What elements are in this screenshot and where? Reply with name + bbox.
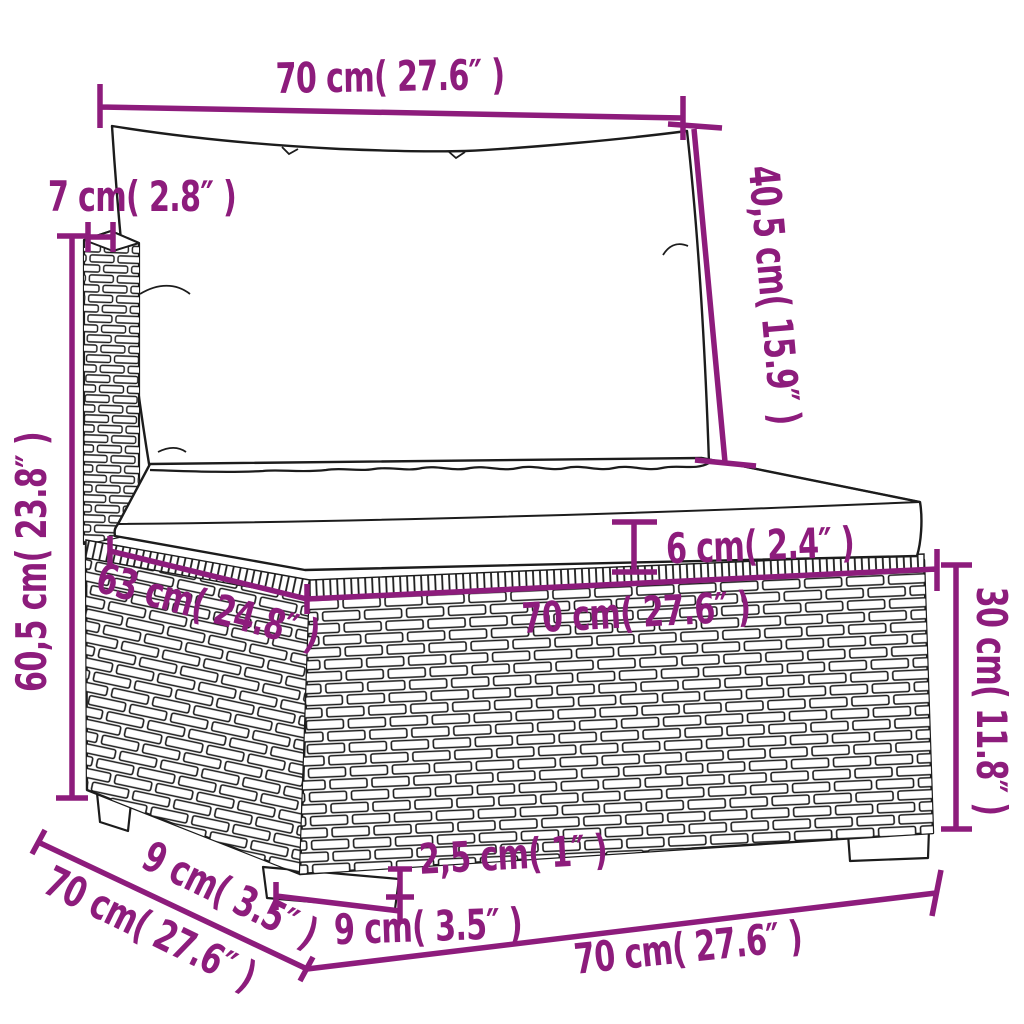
dim-label-total-height: 60,5 cm( 23.8″ ) (11, 432, 53, 692)
dim-label-back-width: 70 cm( 27.6″ ) (275, 54, 504, 100)
dim-label-seat-width: 70 cm( 27.6″ ) (521, 586, 752, 640)
dim-label-front-leg-depth: 9 cm( 3.5″ ) (333, 903, 522, 952)
dim-label-leg-height: 2,5 cm( 1″ ) (418, 829, 608, 881)
dim-label-post-width: 7 cm( 2.8″ ) (48, 176, 236, 218)
dim-label-base-height: 30 cm( 11.8″ ) (970, 587, 1012, 816)
dim-label-seat-cushion-thickness: 6 cm( 2.4″ ) (665, 522, 854, 571)
dimension-diagram: 70 cm( 27.6″ ) 7 cm( 2.8″ ) 60,5 cm( 23.… (0, 0, 1024, 1024)
back-post (84, 231, 139, 544)
